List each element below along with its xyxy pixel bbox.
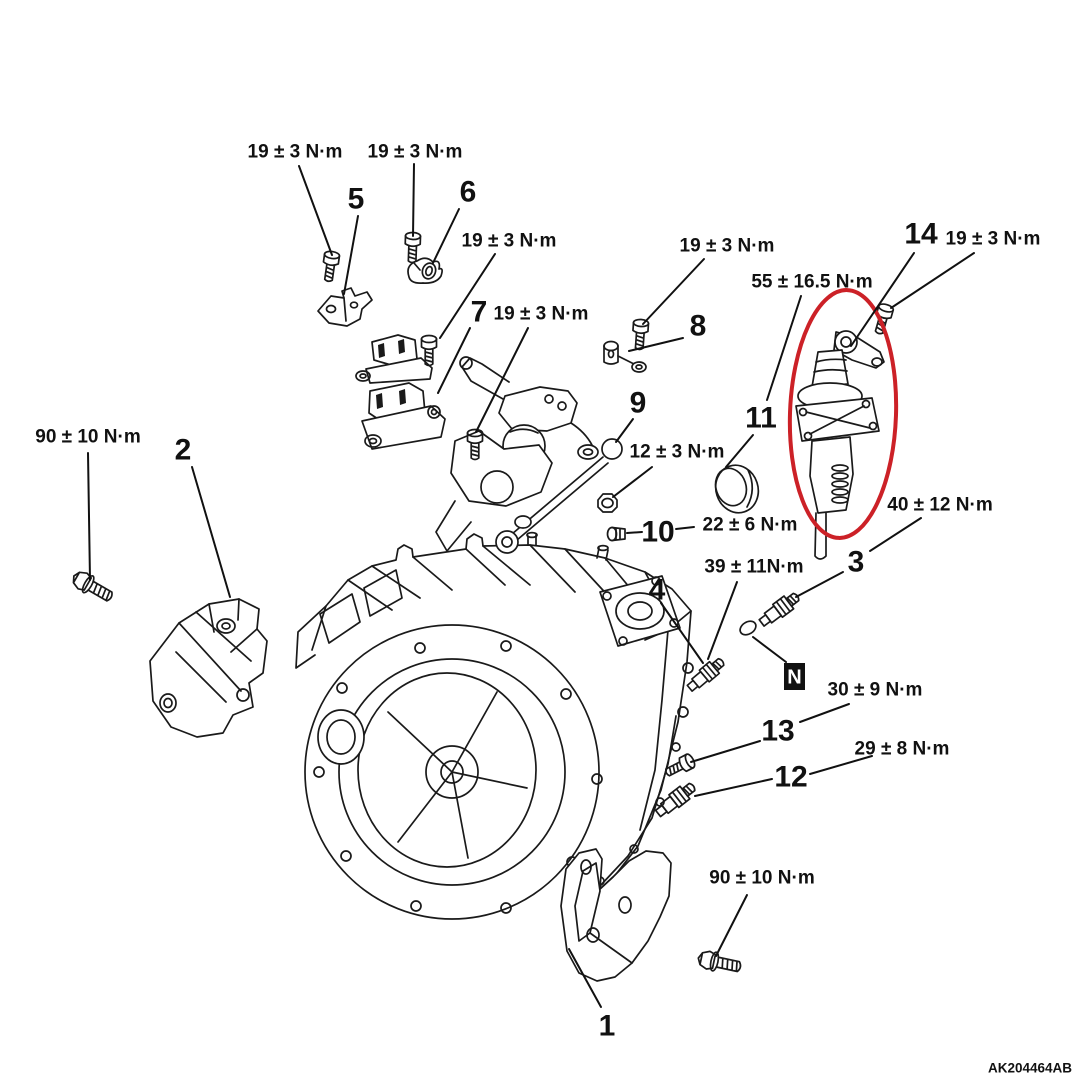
torque-label-2: 19 ± 3 N·m: [368, 142, 463, 163]
part-number-8: 8: [690, 310, 707, 343]
torque-label-11: 39 ± 11N·m: [704, 557, 803, 578]
torque-label-6: 55 ± 16.5 N·m: [751, 272, 872, 293]
drawing-code: AK204464AB: [988, 1061, 1072, 1076]
torque-label-1: 19 ± 3 N·m: [248, 142, 343, 163]
torque-label-4: 19 ± 3 N·m: [494, 304, 589, 325]
torque-label-15: 90 ± 10 N·m: [709, 868, 814, 889]
part-number-9: 9: [630, 387, 647, 420]
o-ring: [738, 618, 759, 637]
part-number-10: 10: [641, 516, 674, 549]
part-leader-line: [433, 209, 459, 263]
cap-11-drawing: [710, 460, 765, 519]
labels-layer: 19 ± 3 N·m19 ± 3 N·m19 ± 3 N·m19 ± 3 N·m…: [35, 142, 1072, 1076]
part-leader-line: [691, 741, 760, 762]
part-leader-line: [438, 328, 470, 393]
part-number-11: 11: [745, 402, 777, 435]
part-number-13: 13: [761, 715, 794, 748]
select-lever-assembly-drawing: [796, 331, 884, 559]
part-leader-line: [627, 532, 642, 533]
torque-label-8: 12 ± 3 N·m: [630, 442, 725, 463]
part-leader-line: [616, 419, 633, 442]
part-number-3: 3: [848, 546, 865, 579]
torque-label-5: 19 ± 3 N·m: [680, 236, 775, 257]
torque-leader-line: [88, 453, 90, 580]
part-number-2: 2: [175, 434, 192, 467]
stopper-bracket-7-drawing: [356, 335, 445, 449]
torque-leader-line: [767, 296, 801, 400]
torque-leader-line: [800, 704, 849, 722]
torque-label-13: 29 ± 8 N·m: [855, 739, 950, 760]
exploded-parts-diagram: 19 ± 3 N·m19 ± 3 N·m19 ± 3 N·m19 ± 3 N·m…: [0, 0, 1078, 1080]
new-part-leader-line: [753, 637, 786, 662]
new-part-symbol: N: [787, 667, 801, 689]
torque-leader-line: [299, 166, 332, 255]
part-number-5: 5: [348, 183, 365, 216]
torque-label-12: 30 ± 9 N·m: [828, 680, 923, 701]
torque-label-14: 90 ± 10 N·m: [35, 427, 140, 448]
part-leader-line: [192, 467, 230, 597]
plug-screw-10-drawing: [608, 528, 626, 541]
torque-leader-line: [870, 518, 921, 551]
part-number-4: 4: [649, 574, 666, 607]
part-number-6: 6: [460, 176, 477, 209]
switch-12-drawing: [653, 780, 698, 820]
torque-leader-line: [676, 527, 694, 529]
part-number-1: 1: [599, 1010, 616, 1043]
part-leader-line: [695, 779, 772, 796]
shift-linkage-drawing: [436, 357, 622, 553]
torque-leader-line: [708, 582, 737, 659]
bracket-8-drawing: [604, 342, 646, 373]
torque-leader-line: [413, 164, 414, 236]
sensor-4-drawing: [685, 655, 727, 694]
part-number-7: 7: [471, 296, 488, 329]
part-leader-line: [344, 216, 358, 294]
mount-bracket-2-drawing: [150, 599, 267, 737]
switch-3-drawing: [738, 590, 803, 638]
torque-leader-line: [716, 895, 747, 956]
torque-label-3: 19 ± 3 N·m: [462, 231, 557, 252]
torque-label-9: 22 ± 6 N·m: [703, 515, 798, 536]
part-leader-line: [726, 435, 753, 467]
torque-leader-line: [891, 253, 974, 308]
torque-leader-line: [613, 467, 652, 497]
part-number-12: 12: [774, 761, 807, 794]
part-number-14: 14: [904, 218, 938, 251]
transaxle-exploded-view: 19 ± 3 N·m19 ± 3 N·m19 ± 3 N·m19 ± 3 N·m…: [0, 0, 1078, 1080]
torque-label-10: 40 ± 12 N·m: [887, 495, 992, 516]
torque-label-7: 19 ± 3 N·m: [946, 229, 1041, 250]
